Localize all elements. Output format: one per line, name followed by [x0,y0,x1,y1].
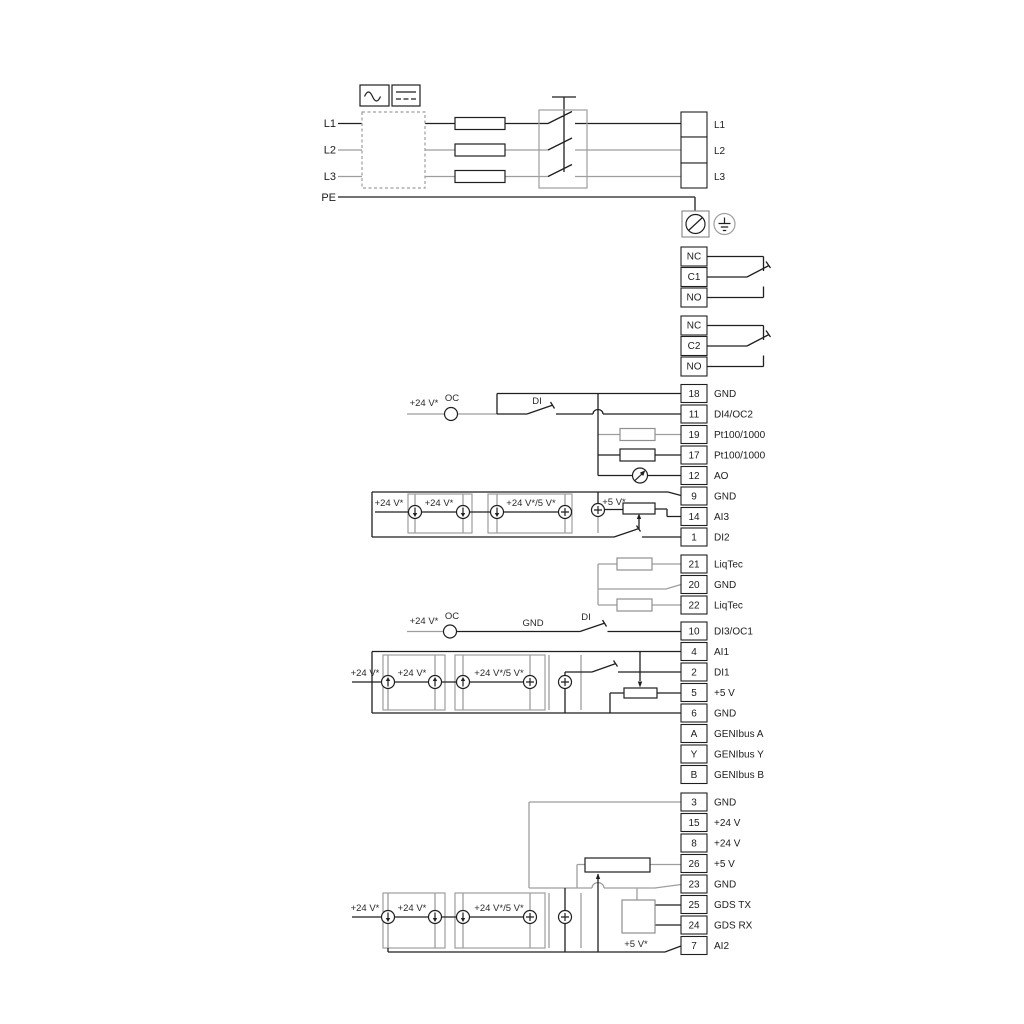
voltage-annotation: +24 V* [410,398,439,409]
io-terminal-block-4: 3GND 15+24 V 8+24 V 26+5 V 23GND 25GDS T… [681,793,753,955]
terminal-number: 14 [688,512,700,523]
voltage-annotation: +5 V* [624,939,648,950]
voltage-annotation: +24 V* [398,903,427,914]
terminal-number: 4 [691,647,697,658]
io-terminal-block-liqtec: 21LiqTec 20GND 22LiqTec [681,555,743,614]
terminal-number: 26 [688,859,700,870]
terminal-number: 3 [691,798,697,809]
power-input-section: L1 L2 L3 PE L1 L2 L3 [321,85,735,237]
potentiometer-ai1 [624,682,657,699]
terminal-cell [681,137,707,163]
power-output-terminal-block: L1 L2 L3 [681,112,726,188]
terminal-label: LiqTec [714,560,743,571]
terminal-number: 1 [691,533,697,544]
terminal-number: NO [687,293,702,304]
terminal-label: GENIbus B [714,770,764,781]
pt100-resistor-icon [620,429,655,441]
open-collector-icon [445,408,458,421]
converter-dashed-box [362,112,425,188]
voltage-annotation: +24 V* [375,498,404,509]
ac-dc-converter [360,85,425,188]
fuse-icon [455,144,505,156]
pt100-resistor-icon [620,449,655,461]
pe-ground [682,211,735,237]
fuse-icon [455,118,505,130]
analog-output-meter-icon [633,468,648,483]
terminal-number: 22 [688,601,700,612]
wiring-diagram: L1 L2 L3 PE L1 L2 L3 [0,0,1024,1024]
terminal-label: DI1 [714,668,730,679]
terminal-label: L2 [714,146,726,157]
di-annotation: DI [532,396,542,407]
potentiometer-ai2 [585,858,650,879]
terminal-label: GND [714,580,736,591]
terminal-number: 24 [688,921,700,932]
voltage-annotation: +5 V* [602,497,626,508]
voltage-annotation: +24 V*/5 V* [474,668,524,679]
terminal-number: 5 [691,688,697,699]
terminal-number: 12 [688,471,700,482]
voltage-annotation: +24 V* [351,903,380,914]
wiring-gray [338,124,681,949]
terminal-label: +5 V [714,859,735,870]
dc-symbol-box [392,85,420,106]
terminal-label: GND [714,709,736,720]
io-terminal-block-1: 18GND 11DI4/OC2 19Pt100/1000 17Pt100/100… [681,385,766,547]
terminal-number: C2 [688,341,701,352]
fuse-icon [455,171,505,183]
terminal-label: GND [714,389,736,400]
liqtec-sensor-icon [617,558,652,570]
terminal-cell [681,112,707,137]
voltage-annotation: +24 V*/5 V* [506,498,556,509]
oc-annotation: OC [445,393,459,404]
terminal-label: AI2 [714,941,729,952]
io-terminal-block-3: 10DI3/OC1 4AI1 2DI1 5+5 V 6GND AGENIbus … [681,622,764,784]
power-line-label: PE [321,192,336,204]
gnd-annotation: GND [522,618,543,629]
terminal-label: GDS RX [714,921,753,932]
liqtec-sensor-icon [617,599,652,611]
terminal-number: 15 [688,818,700,829]
terminal-label: LiqTec [714,601,743,612]
terminal-label: DI3/OC1 [714,627,753,638]
power-line-label: L2 [324,145,336,157]
terminal-label: GDS TX [714,900,751,911]
terminal-label: DI4/OC2 [714,410,753,421]
terminal-number: 19 [688,430,700,441]
voltage-annotation: +24 V* [351,668,380,679]
relay1-terminal-block: NC C1 NO [681,247,707,307]
terminal-label: L3 [714,172,726,183]
terminal-number: 20 [688,580,700,591]
terminal-label: +5 V [714,688,735,699]
earth-ground-icon [719,218,731,231]
terminal-number: NC [687,321,701,332]
terminal-number: A [691,729,698,740]
terminal-number: C1 [688,272,701,283]
terminal-number: 6 [691,709,697,720]
fuses [455,118,505,183]
terminal-number: 18 [688,389,700,400]
terminal-number: 9 [691,492,697,503]
terminal-number: 17 [688,451,700,462]
terminal-number: 21 [688,560,700,571]
voltage-annotation: +24 V* [410,616,439,627]
terminal-label: DI2 [714,533,730,544]
terminal-number: NC [687,252,701,263]
terminal-label: L1 [714,120,726,131]
terminal-number: B [691,770,698,781]
terminal-number: 10 [688,627,700,638]
terminal-number: 25 [688,900,700,911]
relay2-terminal-block: NC C2 NO [681,316,707,376]
terminal-label: +24 V [714,818,741,829]
oc-annotation: OC [445,611,459,622]
terminal-label: AI3 [714,512,729,523]
voltage-annotation: +24 V* [398,668,427,679]
open-collector-icon [444,625,457,638]
terminal-label: +24 V [714,839,741,850]
terminal-number: Y [691,750,698,761]
terminal-label: Pt100/1000 [714,430,766,441]
terminal-number: 8 [691,839,697,850]
terminal-label: GENIbus A [714,729,764,740]
voltage-annotation: +24 V* [425,498,454,509]
terminal-cell [681,163,707,188]
terminal-number: 2 [691,668,697,679]
terminal-label: GND [714,880,736,891]
terminal-label: GND [714,492,736,503]
terminal-label: AO [714,471,729,482]
voltage-annotation: +24 V*/5 V* [474,903,524,914]
terminal-number: 11 [689,410,700,421]
terminal-label: AI1 [714,647,729,658]
di-annotation: DI [581,612,591,623]
terminal-label: GND [714,798,736,809]
terminal-label: GENIbus Y [714,750,764,761]
terminal-number: NO [687,362,702,373]
power-line-label: L1 [324,118,336,130]
terminal-label: Pt100/1000 [714,451,766,462]
terminal-number: 7 [691,941,697,952]
wiring-diagram-page: L1 L2 L3 PE L1 L2 L3 [0,0,1024,1024]
gds-sensor-box [622,900,655,933]
potentiometer-ai3 [623,503,655,519]
terminal-number: 23 [688,880,700,891]
power-line-label: L3 [324,171,336,183]
